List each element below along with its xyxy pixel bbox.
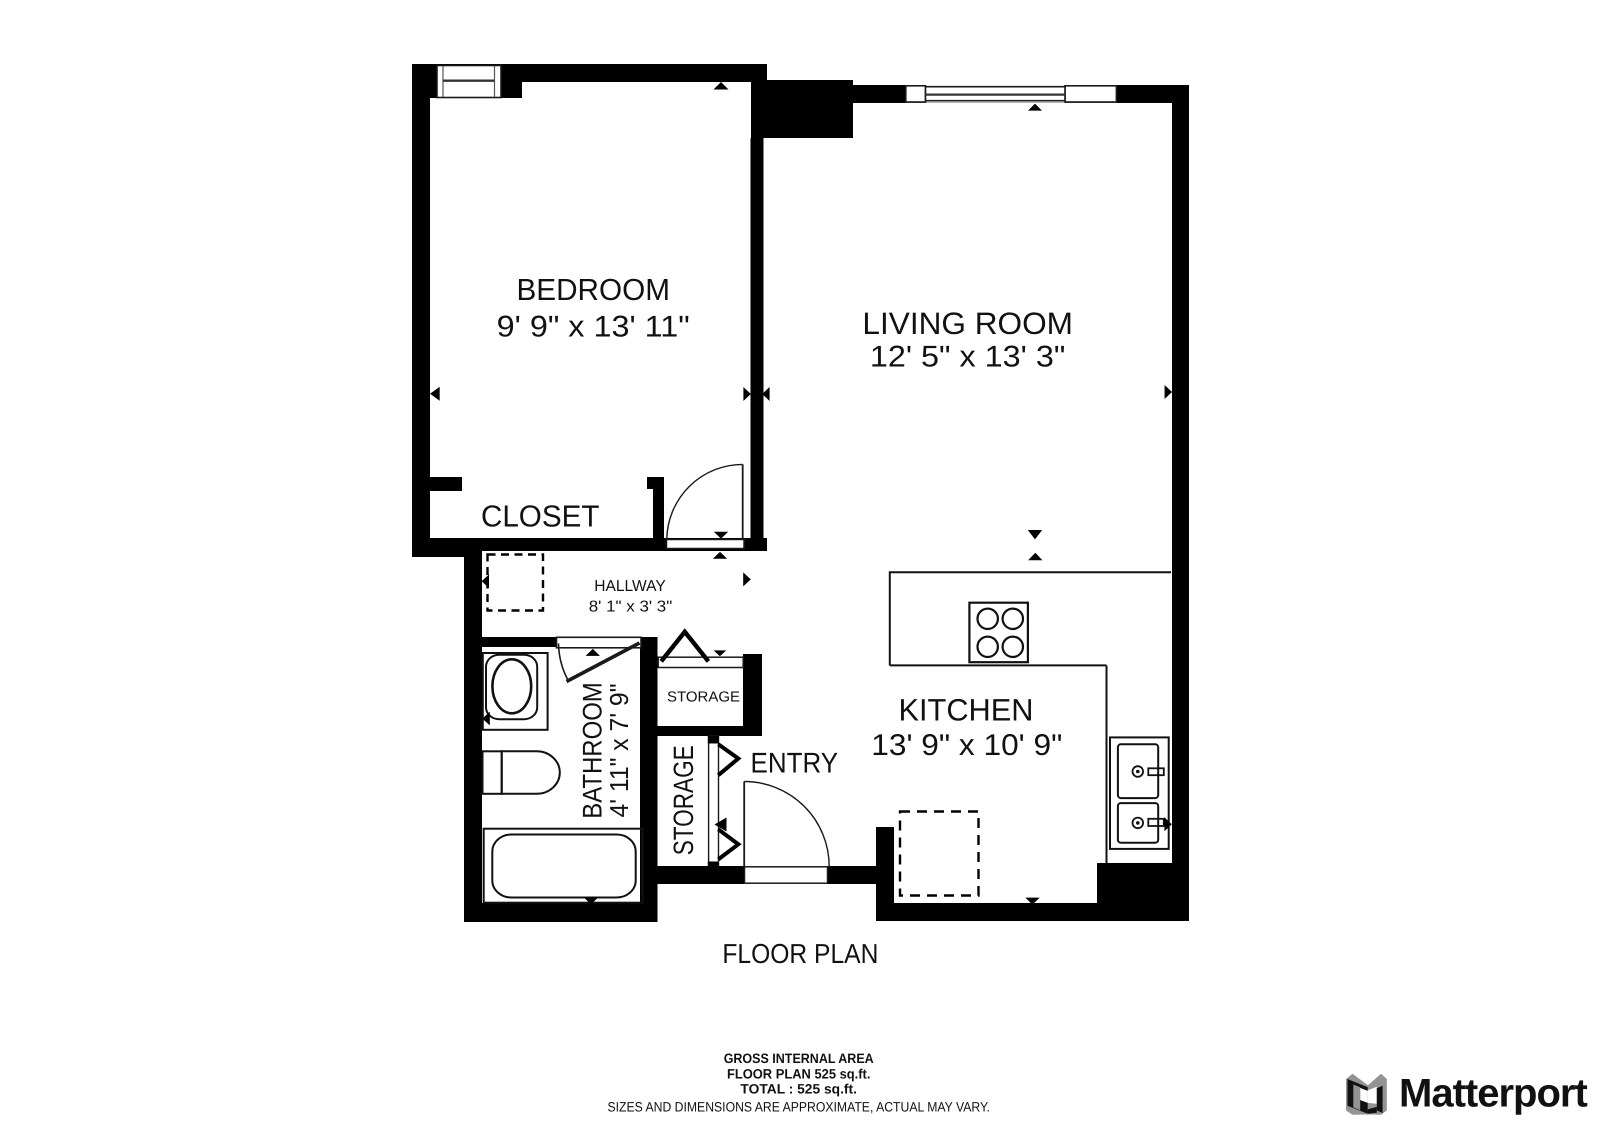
svg-text:SIZES AND DIMENSIONS ARE APPRO: SIZES AND DIMENSIONS ARE APPROXIMATE, AC… — [607, 1099, 990, 1114]
svg-text:HALLWAY: HALLWAY — [594, 578, 666, 595]
svg-text:KITCHEN: KITCHEN — [899, 693, 1034, 728]
svg-text:TOTAL : 525 sq.ft.: TOTAL : 525 sq.ft. — [740, 1082, 857, 1097]
svg-text:FLOOR PLAN: FLOOR PLAN — [722, 938, 878, 969]
svg-text:STORAGE: STORAGE — [667, 689, 740, 705]
svg-text:13' 9" x 10' 9": 13' 9" x 10' 9" — [871, 729, 1062, 762]
svg-text:8' 1" x 3' 3": 8' 1" x 3' 3" — [589, 598, 673, 615]
svg-text:STORAGE: STORAGE — [668, 745, 699, 855]
svg-text:FLOOR PLAN 525 sq.ft.: FLOOR PLAN 525 sq.ft. — [727, 1066, 871, 1081]
svg-text:GROSS INTERNAL AREA: GROSS INTERNAL AREA — [724, 1051, 874, 1066]
svg-text:LIVING ROOM: LIVING ROOM — [862, 306, 1073, 341]
svg-text:12' 5" x 13' 3": 12' 5" x 13' 3" — [870, 341, 1066, 374]
svg-text:4' 11" x 7' 9": 4' 11" x 7' 9" — [604, 684, 634, 818]
svg-text:BEDROOM: BEDROOM — [516, 273, 670, 307]
svg-text:ENTRY: ENTRY — [751, 748, 839, 780]
svg-text:9' 9" x 13' 11": 9' 9" x 13' 11" — [497, 311, 690, 344]
svg-text:Matterport: Matterport — [1399, 1072, 1587, 1116]
svg-text:CLOSET: CLOSET — [481, 500, 600, 534]
